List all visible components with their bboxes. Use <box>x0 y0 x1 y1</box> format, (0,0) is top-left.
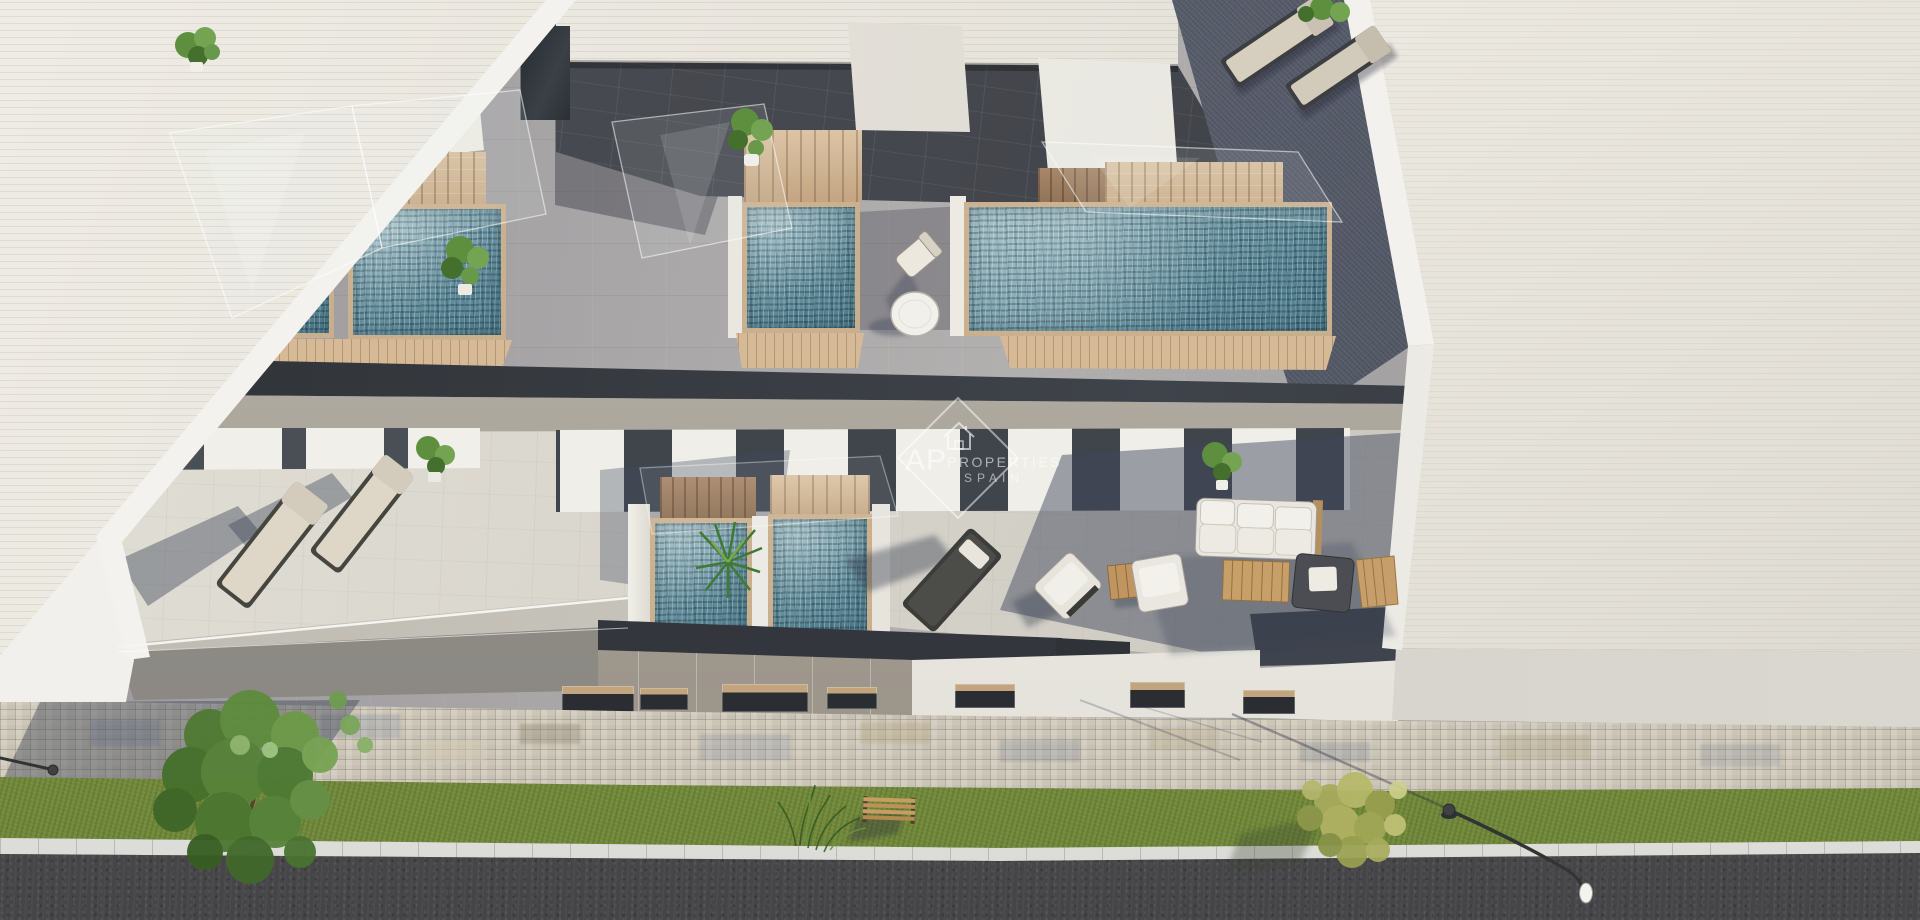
branch-shadow <box>1140 706 1262 742</box>
branch-shadow <box>1080 700 1240 760</box>
armchair-dark <box>1291 553 1354 613</box>
roof-round-table <box>891 292 939 336</box>
wood-pad-corner <box>1356 556 1398 608</box>
street-lamp-right <box>1232 714 1593 903</box>
glass-panel <box>352 90 546 248</box>
palm-plant <box>696 522 762 598</box>
potted-plant <box>1202 442 1242 490</box>
grass-tuft <box>778 785 866 852</box>
armchair-white <box>1131 553 1189 613</box>
watermark: AP PROPERTIES SPAIN <box>898 398 1062 518</box>
potted-plant <box>441 236 489 295</box>
watermark-name: PROPERTIES <box>947 454 1062 470</box>
sun-lounger <box>309 453 415 574</box>
tree-yellow <box>1297 772 1407 868</box>
watermark-country: SPAIN <box>964 471 1024 485</box>
potted-plant <box>416 436 455 482</box>
watermark-initials: AP <box>905 444 947 477</box>
tree-green <box>153 690 373 884</box>
coffee-table <box>1222 560 1289 602</box>
lamp-head <box>1580 883 1593 903</box>
architectural-render: AP PROPERTIES SPAIN <box>0 0 1920 920</box>
house-icon <box>944 423 974 449</box>
street-lamp-left <box>0 757 58 775</box>
potted-plant <box>175 27 220 72</box>
sun-lounger <box>215 480 329 610</box>
vector-overlay: AP PROPERTIES SPAIN <box>0 0 1920 920</box>
sofa <box>1195 496 1323 562</box>
glass-panel <box>640 456 898 534</box>
glass-panel <box>1042 142 1342 222</box>
